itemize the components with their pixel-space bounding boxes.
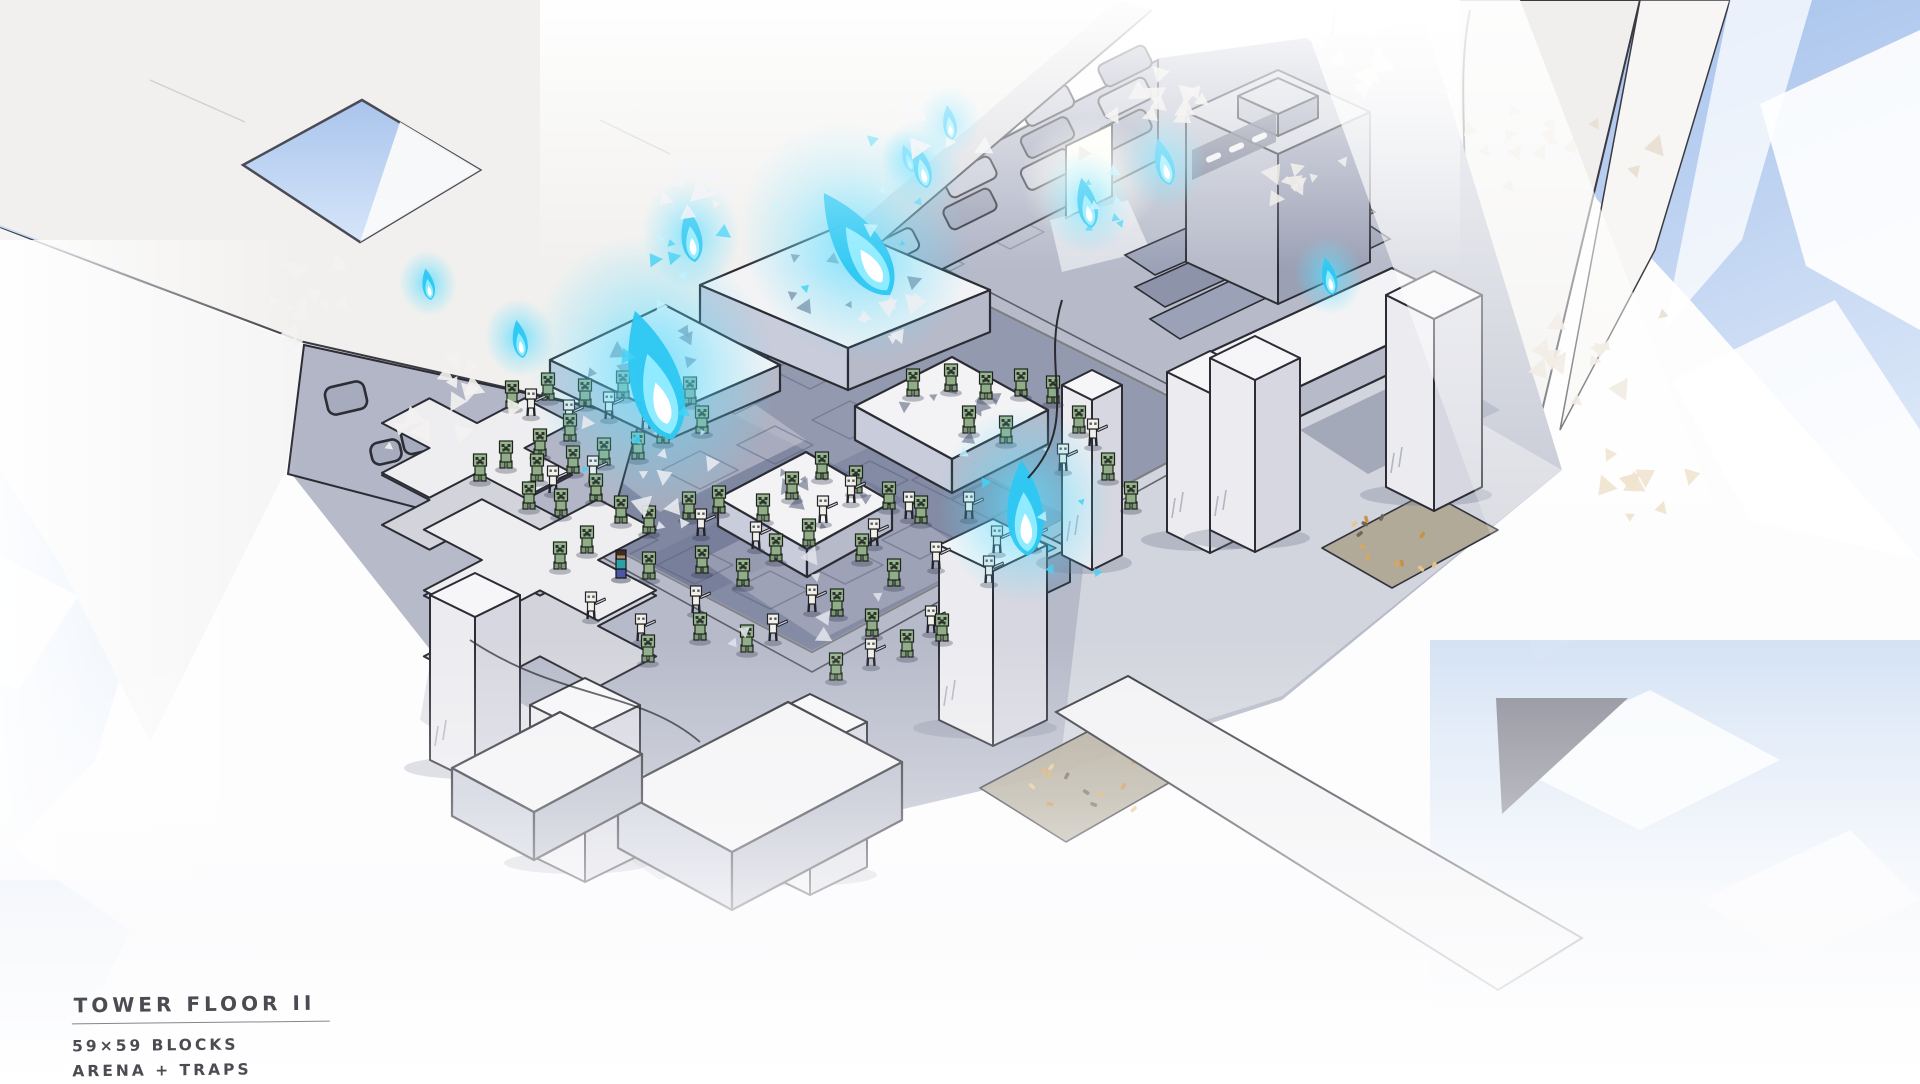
note-title: TOWER FLOOR II bbox=[72, 991, 330, 1025]
concept-art-canvas bbox=[0, 0, 1920, 1080]
note-annotation: TOWER FLOOR II 59×59 BLOCKS ARENA + TRAP… bbox=[72, 991, 331, 1084]
note-size-label: 59×59 BLOCKS bbox=[72, 1032, 330, 1059]
